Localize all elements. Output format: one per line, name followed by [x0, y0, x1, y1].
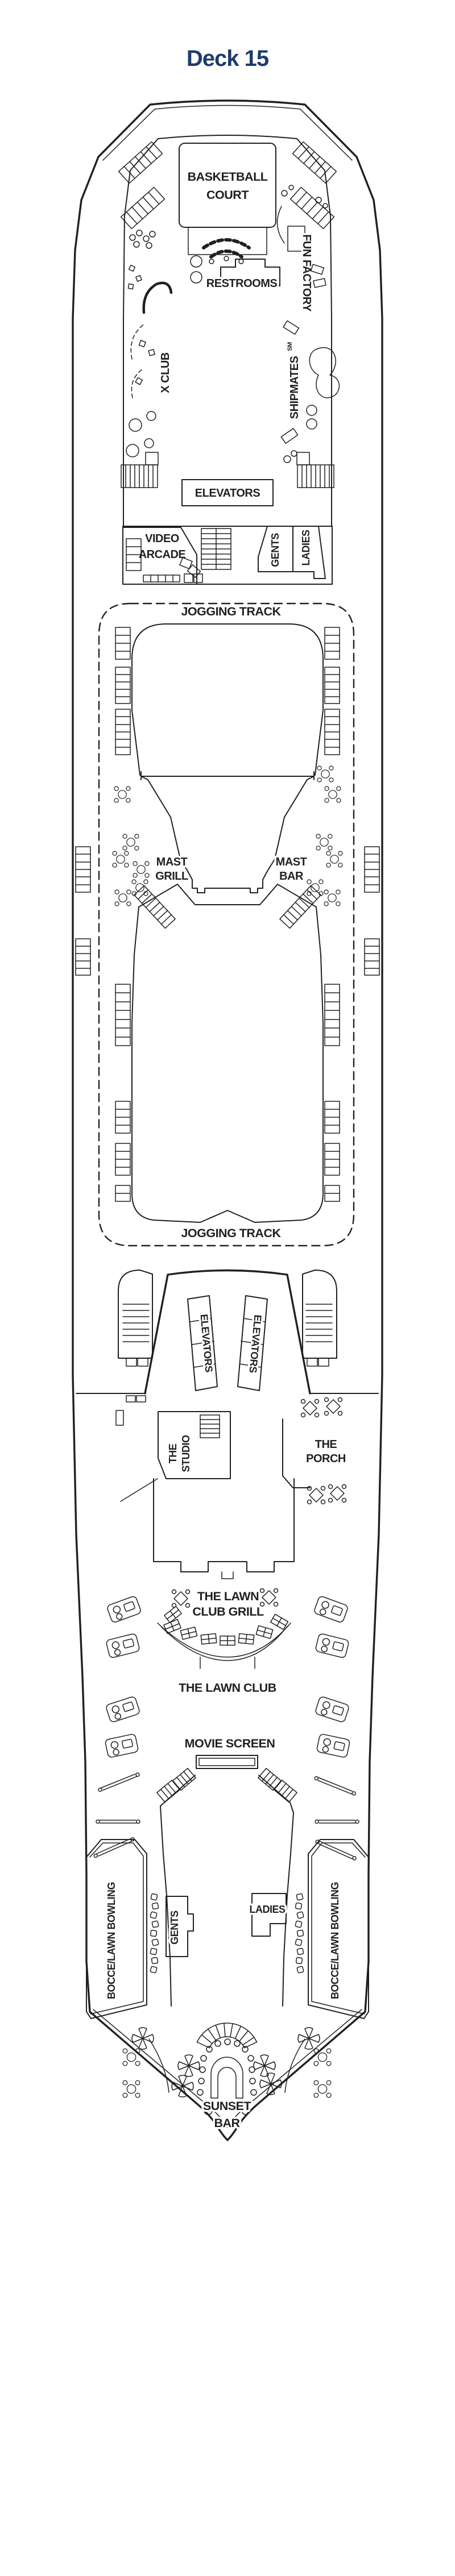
deck-chairs-icon [119, 142, 163, 183]
basketball-court-label: COURT [206, 188, 249, 202]
grill-table-icon [256, 1626, 272, 1639]
porch-label: PORCH [306, 1453, 346, 1465]
grill-table-icon [238, 1634, 254, 1645]
lower-deck-opening [132, 884, 323, 1222]
chair-icon [297, 1930, 303, 1936]
deck-chairs-icon [293, 142, 337, 183]
deck-chairs-icon [325, 984, 340, 1046]
deck-chairs-group-mid [76, 627, 379, 1201]
sunset-umbrellas [132, 2028, 320, 2097]
mast-grill-label: MAST [156, 856, 188, 868]
chair-icon [297, 1948, 304, 1955]
shipmates-sm-label: SM [287, 342, 293, 351]
chair-icon [295, 1921, 302, 1928]
chair-icon [151, 1893, 158, 1900]
lawn-club-grill-label: CLUB GRILL [192, 1605, 264, 1618]
lounge-icon [105, 1696, 140, 1722]
restrooms-label: RESTROOMS [206, 277, 278, 290]
mast-bar-label: BAR [279, 870, 304, 883]
square-table-icon [301, 1400, 319, 1417]
the-studio: THE STUDIO [116, 1396, 230, 1501]
deck-plan-svg: BASKETBALL COURT RESTROOMS FUN FACTORY X… [0, 0, 455, 2576]
gents-forward-label: GENTS [270, 533, 281, 567]
bar-icon [211, 2057, 243, 2098]
sunset-bar-label: SUNSET [203, 2099, 251, 2113]
square-table-icon [260, 1589, 278, 1607]
shipmates-label: SHIPMATES [288, 356, 301, 419]
studio-label: THE [167, 1443, 179, 1463]
chair-icon [296, 1893, 303, 1900]
deck-chairs-icon [325, 1185, 340, 1201]
chair-icon [295, 1903, 302, 1909]
deck-chairs-icon [115, 1143, 130, 1175]
deck-chairs-icon [365, 939, 379, 975]
deck-chairs-icon [173, 1768, 196, 1791]
table-icon [324, 890, 340, 906]
lounge-icon [106, 1596, 142, 1624]
movie-screen-area: MOVIE SCREEN [157, 1737, 297, 2006]
bench-icon [314, 1776, 356, 1795]
video-arcade-label: ARCADE [139, 548, 186, 561]
fan-canopy-icon [197, 2023, 257, 2048]
stairs-icon [121, 465, 158, 488]
square-table-icon [308, 1487, 325, 1504]
grill-table-icon [164, 1607, 181, 1623]
aft-benches [93, 1772, 359, 1861]
table-icon [325, 786, 341, 802]
stairs-icon [297, 465, 334, 488]
lawn-club-grill: THE LAWN CLUB GRILL [154, 1479, 294, 1668]
x-club-label: X CLUB [159, 352, 172, 393]
umbrella-icon [298, 2028, 320, 2049]
gents-aft-label: GENTS [169, 1911, 180, 1945]
x-club: X CLUB [126, 324, 172, 457]
sunset-tables [123, 2049, 331, 2098]
deck-plan-page: BASKETBALL COURT RESTROOMS FUN FACTORY X… [0, 0, 455, 2576]
square-table-icon [329, 1485, 346, 1503]
chair-icon [295, 1939, 302, 1946]
deck-chairs-icon [126, 539, 141, 571]
table-icon [133, 862, 149, 877]
chair-icon [296, 1957, 302, 1963]
elevators-forward-label: ELEVATORS [195, 487, 260, 500]
basketball-court: BASKETBALL COURT [179, 143, 305, 255]
chair-icon [150, 1930, 156, 1936]
grill-counter-icon [134, 886, 175, 929]
forward-washrooms: GENTS LADIES [258, 526, 325, 579]
ladies-aft-label: LADIES [249, 1904, 286, 1915]
table-icon [113, 851, 129, 867]
fun-factory-label: FUN FACTORY [300, 234, 313, 312]
square-table-icon [172, 1590, 190, 1608]
bench-icon [96, 1820, 140, 1824]
video-arcade-label: VIDEO [145, 532, 179, 545]
chair-icon [297, 1966, 304, 1973]
table-icon [317, 766, 333, 782]
table-icon [326, 851, 342, 867]
umbrella-icon [178, 2055, 200, 2076]
deck-chairs-icon [325, 667, 340, 704]
ship-hull [73, 101, 382, 2140]
table-icon [115, 890, 131, 906]
porch-label: THE [315, 1438, 337, 1451]
forward-left-furniture [128, 230, 171, 313]
chair-icon [152, 1939, 159, 1946]
movie-screen-label: MOVIE SCREEN [185, 1737, 275, 1750]
mast-grill: MAST GRILL [134, 856, 188, 928]
bench-icon [315, 1820, 359, 1824]
bocce-left-label: BOCCE/LAWN BOWLING [106, 1882, 117, 1999]
table-icon [123, 834, 139, 850]
video-arcade: VIDEO ARCADE [123, 527, 202, 584]
deck-chairs-icon [115, 667, 130, 704]
deck-chairs-icon [115, 627, 130, 659]
chair-icon [150, 1948, 157, 1955]
lounge-icon [313, 1596, 349, 1624]
table-icon [123, 2080, 140, 2098]
forward-center-stairs [201, 528, 231, 569]
lawn-club-grill-label: THE LAWN [197, 1589, 259, 1603]
bench-icon [98, 1772, 140, 1792]
deck-chairs-icon [76, 847, 90, 892]
chair-icon [152, 1903, 159, 1909]
studio-label: STUDIO [180, 1435, 192, 1472]
deck-chairs-icon [325, 1143, 340, 1175]
deck-chairs-icon [115, 1101, 130, 1133]
bar-counter-icon [280, 886, 321, 929]
deck-chairs-icon [115, 1185, 130, 1201]
deck-chairs-icon [325, 1101, 340, 1133]
chair-icon [152, 1921, 159, 1928]
ladies-forward-label: LADIES [300, 530, 312, 566]
jogging-track-bottom-label: JOGGING TRACK [181, 1226, 281, 1240]
umbrella-icon [132, 2028, 154, 2049]
deck-chairs-icon [115, 984, 130, 1046]
bocce-right-label: BOCCE/LAWN BOWLING [329, 1882, 341, 1999]
sunset-bar: SUNSET BAR [123, 2023, 331, 2130]
table-icon [114, 786, 130, 802]
forward-elevators: ELEVATORS [121, 452, 334, 506]
bocce-lawns: BOCCE/LAWN BOWLING BOCCE/LAWN BOWLING [86, 1840, 369, 2019]
court-seating [191, 240, 249, 283]
mast-tables [113, 766, 342, 906]
stairs-icon [200, 1415, 220, 1438]
movie-screen-icon [196, 1755, 258, 1768]
mast-grill-label: GRILL [155, 870, 188, 883]
jogging-track-top-label: JOGGING TRACK [181, 605, 281, 618]
square-table-icon [325, 1398, 342, 1416]
lounge-icon [315, 1633, 349, 1658]
chair-icon [150, 1966, 157, 1973]
deck-chairs-icon [325, 627, 340, 659]
lounge-clusters [105, 1596, 350, 1758]
chair-icon [297, 1912, 304, 1919]
page-title: Deck 15 [187, 46, 269, 71]
chair-icon [151, 1957, 158, 1963]
chair-icon [150, 1912, 157, 1919]
deck-chairs-icon [365, 847, 379, 892]
lounge-icon [106, 1633, 140, 1658]
grill-table-icon [271, 1614, 288, 1630]
mast-bar-label: MAST [276, 856, 307, 868]
grill-table-icon [220, 1636, 235, 1645]
deck-chairs-icon [258, 1768, 281, 1791]
lounge-icon [105, 1734, 138, 1758]
deck-chairs-icon [76, 939, 90, 975]
mast-bar: MAST BAR [276, 856, 321, 928]
stairs-icon [201, 528, 231, 569]
upper-deck-opening [132, 624, 323, 775]
table-icon [316, 834, 332, 850]
the-porch: THE PORCH [283, 1398, 346, 1504]
shipmates: SHIPMATES SM [281, 321, 339, 463]
sunset-bar-label: BAR [214, 2116, 240, 2130]
bench-icon [93, 1837, 135, 1858]
table-icon [314, 2080, 331, 2098]
lounge-icon [316, 1734, 350, 1758]
deck-chairs-icon [115, 709, 130, 755]
restrooms: RESTROOMS [206, 259, 280, 290]
grill-table-icon [201, 1634, 217, 1645]
mid-deckhouse [76, 1270, 378, 1393]
lawn-club-label: THE LAWN CLUB [179, 1681, 276, 1695]
mid-elevators: ELEVATORS ELEVATORS [188, 1296, 267, 1391]
table-icon [314, 2049, 331, 2066]
deck-chairs-group-forward [119, 142, 337, 228]
deck-chairs-icon [325, 709, 340, 755]
basketball-court-label: BASKETBALL [188, 170, 268, 184]
aft-washrooms: GENTS LADIES [166, 1893, 286, 1957]
grill-table-icon [180, 1627, 197, 1639]
lounge-icon [315, 1696, 349, 1722]
